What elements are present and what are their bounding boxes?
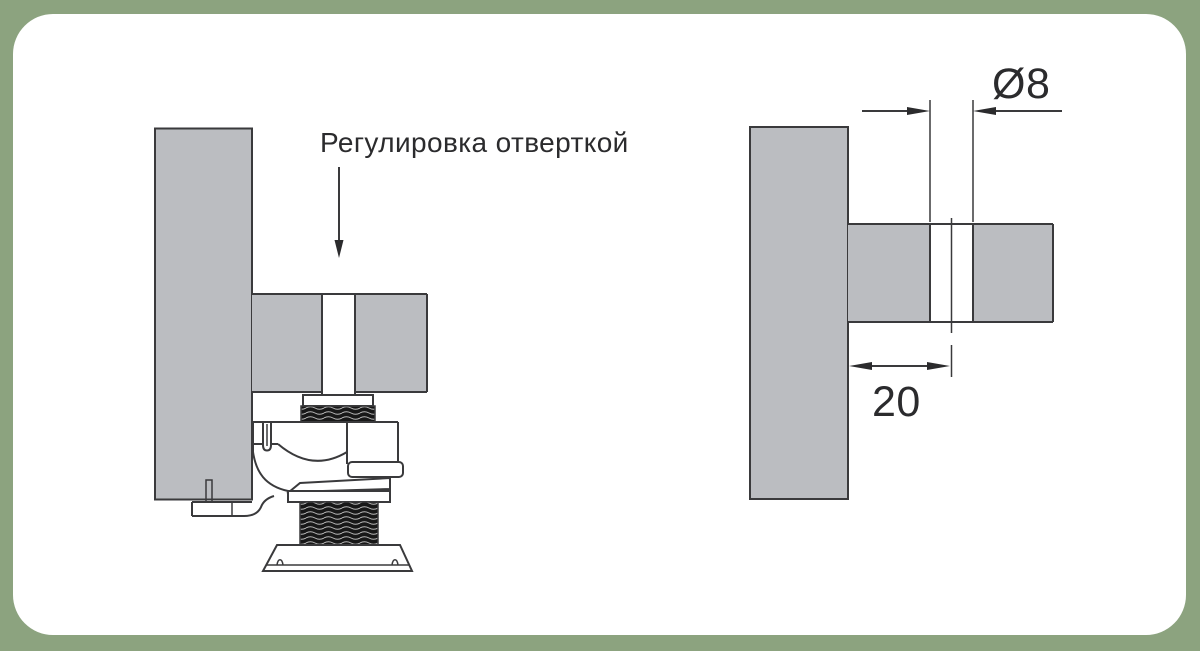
diameter-dimension-label: Ø8 bbox=[992, 60, 1050, 109]
upper-thread bbox=[301, 406, 375, 422]
technical-instruction-page: { "frame": { "background_color": "#8CA37… bbox=[0, 0, 1200, 651]
adjustment-label: Регулировка отверткой bbox=[320, 127, 629, 159]
right-vertical-panel bbox=[750, 127, 848, 499]
drilling-dimensions-diagram bbox=[750, 100, 1062, 499]
lower-thread-spindle bbox=[300, 502, 378, 545]
lower-collar bbox=[288, 491, 390, 502]
housing-flange bbox=[348, 462, 403, 477]
left-vertical-panel bbox=[155, 129, 252, 500]
down-arrow bbox=[335, 167, 344, 258]
diameter-dimension bbox=[862, 100, 1062, 222]
screw-slot-white bbox=[322, 295, 355, 395]
cabinet-leg-section-diagram bbox=[155, 129, 427, 572]
foot-base bbox=[263, 545, 412, 571]
offset-dimension-label: 20 bbox=[872, 378, 921, 427]
offset-dimension bbox=[849, 362, 950, 370]
washer-slope bbox=[289, 478, 390, 492]
screw-collar bbox=[303, 395, 373, 406]
